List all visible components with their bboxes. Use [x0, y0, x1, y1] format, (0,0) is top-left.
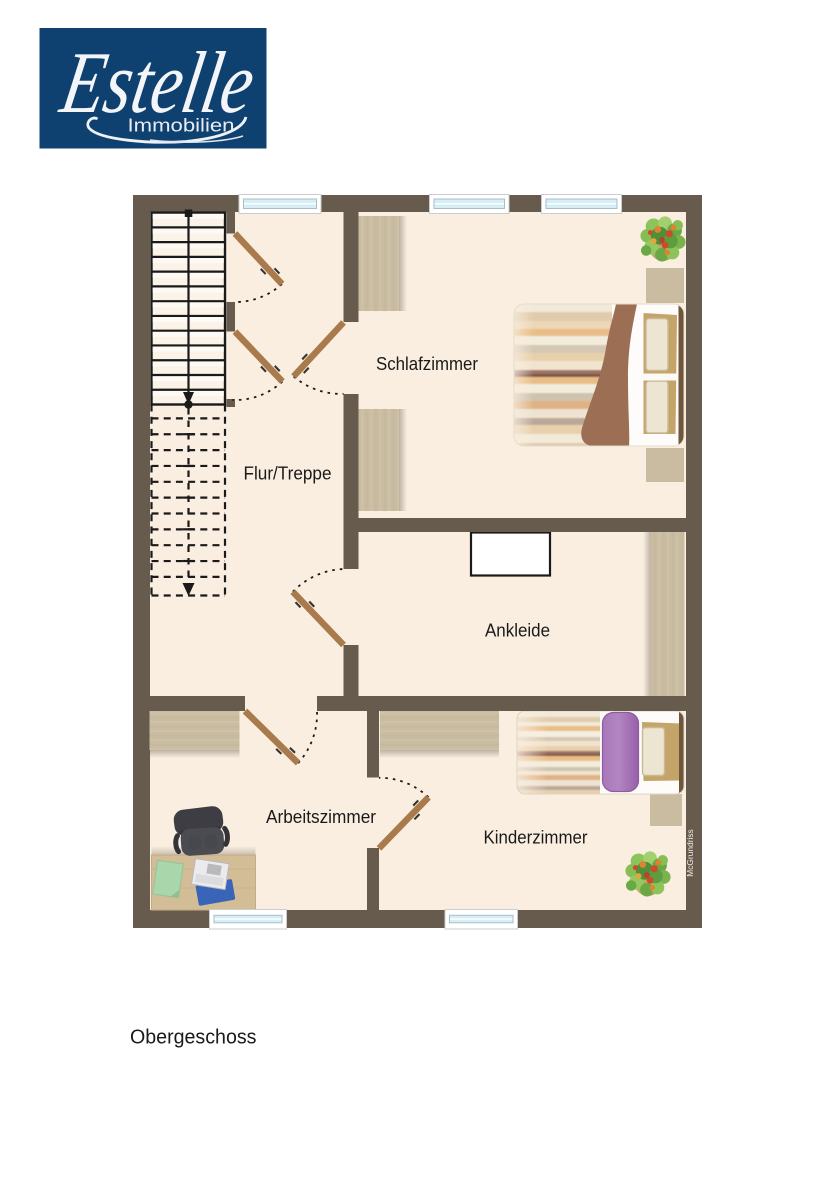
svg-text:Immobilien: Immobilien: [128, 115, 235, 136]
svg-text:Ankleide: Ankleide: [485, 621, 550, 641]
svg-text:Obergeschoss: Obergeschoss: [130, 1027, 257, 1049]
svg-text:Flur/Treppe: Flur/Treppe: [244, 464, 332, 484]
svg-text:Arbeitszimmer: Arbeitszimmer: [266, 807, 376, 827]
svg-text:Kinderzimmer: Kinderzimmer: [484, 828, 588, 848]
svg-text:Schlafzimmer: Schlafzimmer: [376, 354, 478, 374]
svg-text:McGrundriss: McGrundriss: [685, 829, 695, 877]
